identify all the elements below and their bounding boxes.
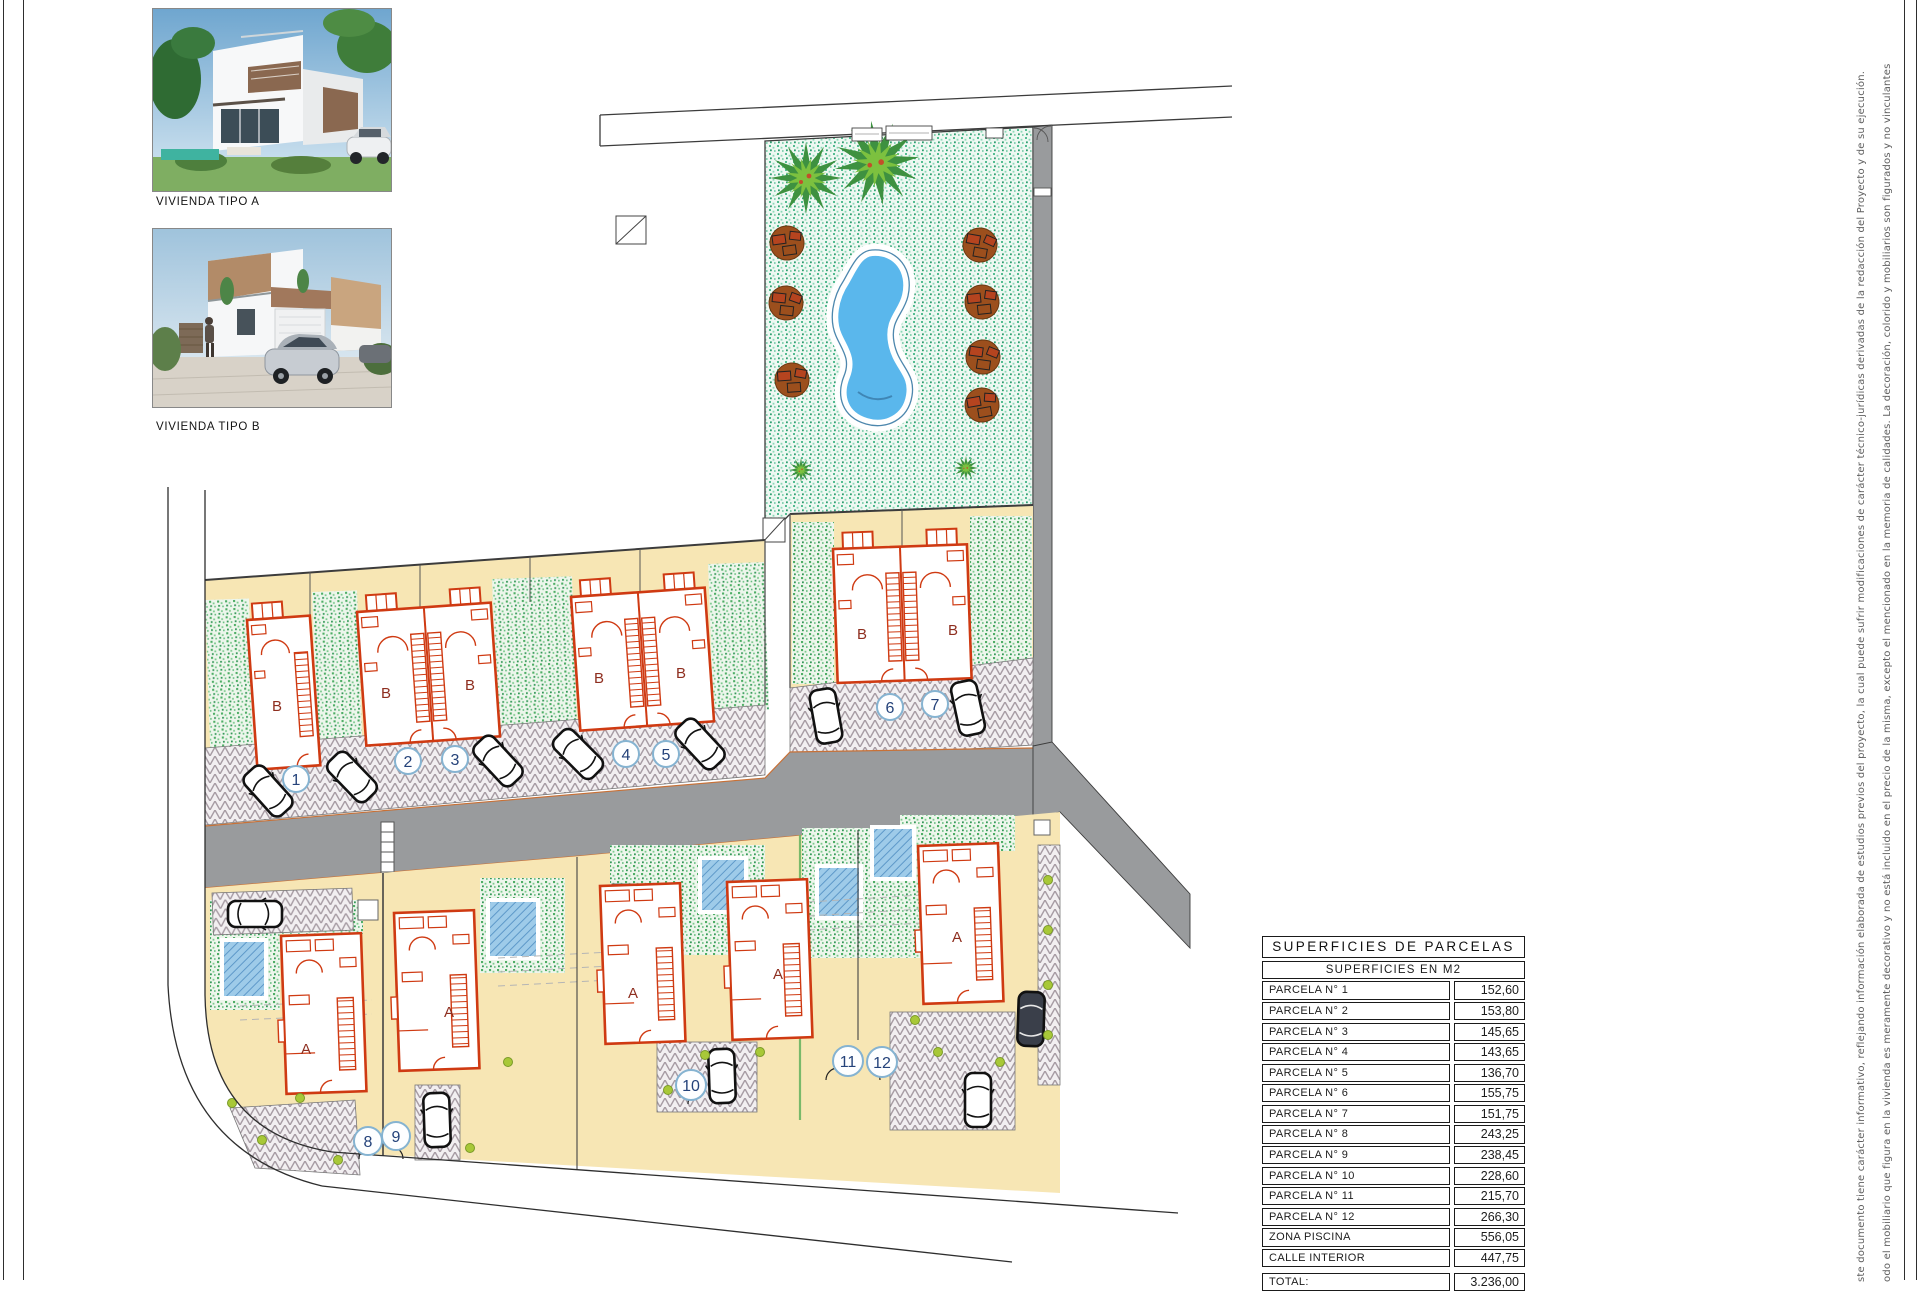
pool-zone [765,108,1033,540]
parcel-value: 238,45 [1454,1146,1525,1164]
parcel-label: PARCELA N° 6 [1262,1084,1450,1102]
surfaces-table-title: SUPERFICIES DE PARCELAS [1262,936,1525,958]
plot-number: 5 [662,747,671,764]
crosswalk [381,822,394,880]
car-icon [1017,992,1045,1047]
parcel-label: PARCELA N° 2 [1262,1002,1450,1020]
house-letter: B [465,677,475,694]
table-row: PARCELA N° 8243,25 [1262,1125,1525,1143]
parcel-value: 145,65 [1454,1023,1525,1041]
surfaces-table-subtitle: SUPERFICIES EN M2 [1262,961,1525,979]
house-letter: A [773,966,783,983]
parcel-value: 243,25 [1454,1125,1525,1143]
parcel-label: PARCELA N° 5 [1262,1064,1450,1082]
table-row: PARCELA N° 11215,70 [1262,1187,1525,1205]
parcel-label: ZONA PISCINA [1262,1228,1450,1246]
parcel-value: 153,80 [1454,1002,1525,1020]
parcel-value: 228,60 [1454,1167,1525,1185]
parcel-label: PARCELA N° 7 [1262,1105,1450,1123]
car-icon [962,1073,994,1127]
plot-number: 12 [873,1055,891,1072]
plot-number: 10 [682,1078,700,1095]
house-letter: B [381,685,391,702]
house-a-plot-11 [721,879,812,1040]
plot-number: 9 [392,1129,401,1146]
table-row: PARCELA N° 6155,75 [1262,1084,1525,1102]
plot-number: 3 [451,752,460,769]
plot-number: 11 [840,1054,857,1071]
table-row: PARCELA N° 7151,75 [1262,1105,1525,1123]
parcel-value: 556,05 [1454,1228,1525,1246]
car-icon [420,1092,454,1147]
car-icon [705,1048,739,1103]
table-row: CALLE INTERIOR447,75 [1262,1249,1525,1267]
parcel-value: 155,75 [1454,1084,1525,1102]
house-b-plots-2-3 [356,587,500,746]
house-letter: A [301,1041,311,1058]
table-row: ZONA PISCINA556,05 [1262,1228,1525,1246]
parcel-value: 447,75 [1454,1249,1525,1267]
parcel-label: PARCELA N° 9 [1262,1146,1450,1164]
house-b-plot-1 [246,600,320,770]
house-letter: B [272,698,282,715]
plot-number: 6 [886,700,895,717]
plot-number: 2 [404,754,413,771]
house-a-plot-8 [275,933,366,1094]
house-letter: A [628,985,638,1002]
house-letter: A [952,929,962,946]
parcel-value: 152,60 [1454,981,1525,999]
access-markers [616,216,785,542]
parcel-value: 215,70 [1454,1187,1525,1205]
house-letter: B [594,670,604,687]
disclaimer-line-1: ste documento tiene carácter informativo… [1856,0,1867,1282]
table-row: PARCELA N° 9238,45 [1262,1146,1525,1164]
parcel-label: PARCELA N° 1 [1262,981,1450,999]
house-a-plot-9 [388,910,479,1071]
table-row: PARCELA N° 5136,70 [1262,1064,1525,1082]
house-letter: B [676,665,686,682]
table-row: PARCELA N° 12266,30 [1262,1208,1525,1226]
parcel-label: CALLE INTERIOR [1262,1249,1450,1267]
car-icon [228,898,282,930]
house-a-plot-12 [912,843,1003,1004]
table-total-row: TOTAL:3.236,00 [1262,1273,1525,1291]
surfaces-table: SUPERFICIES DE PARCELAS SUPERFICIES EN M… [1262,936,1525,1291]
table-row: PARCELA N° 1152,60 [1262,981,1525,999]
parcel-label: PARCELA N° 12 [1262,1208,1450,1226]
table-row: PARCELA N° 2153,80 [1262,1002,1525,1020]
parcel-value: 143,65 [1454,1043,1525,1061]
parcel-label: PARCELA N° 11 [1262,1187,1450,1205]
site-plan: B B B B B B B A A A A A 1 2 3 4 5 6 7 8 … [0,0,1920,1280]
parcel-label: PARCELA N° 4 [1262,1043,1450,1061]
east-access-lane [1033,125,1052,748]
total-label: TOTAL: [1262,1273,1450,1291]
parcel-value: 266,30 [1454,1208,1525,1226]
house-b-plots-4-5 [570,572,714,731]
parcel-label: PARCELA N° 10 [1262,1167,1450,1185]
disclaimer-line-2: odo el mobiliario que figura en la vivie… [1882,0,1893,1282]
parcel-value: 136,70 [1454,1064,1525,1082]
plot-number: 7 [931,697,940,714]
house-a-plot-10 [594,883,685,1044]
house-letter: A [444,1004,454,1021]
table-row: PARCELA N° 3145,65 [1262,1023,1525,1041]
house-letter: B [948,622,958,639]
parcel-label: PARCELA N° 3 [1262,1023,1450,1041]
plot-number: 4 [622,747,631,764]
plot-number: 8 [364,1134,373,1151]
table-row: PARCELA N° 4143,65 [1262,1043,1525,1061]
plot-number: 1 [292,772,301,789]
house-letter: B [857,626,867,643]
house-b-plots-6-7 [832,528,971,683]
parcel-value: 151,75 [1454,1105,1525,1123]
parcel-label: PARCELA N° 8 [1262,1125,1450,1143]
table-row: PARCELA N° 10228,60 [1262,1167,1525,1185]
total-value: 3.236,00 [1454,1273,1525,1291]
